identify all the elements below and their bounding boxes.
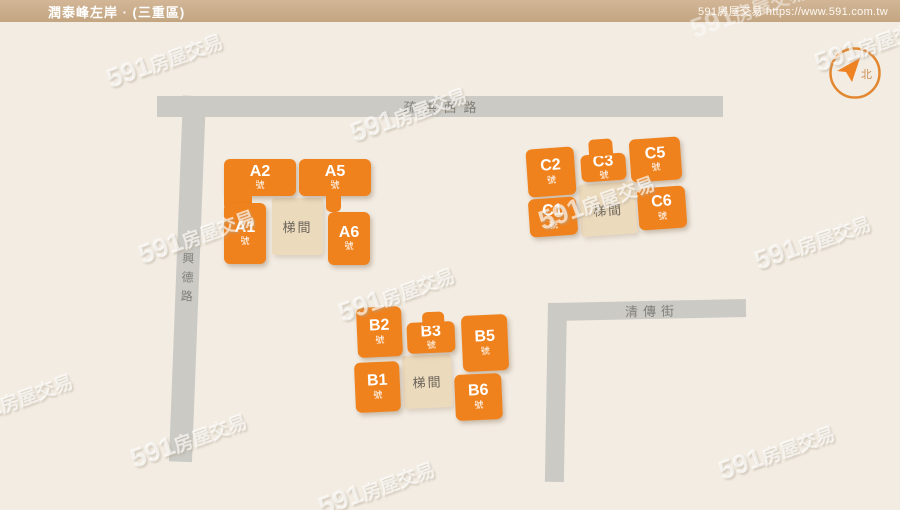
building-unit-label: 號 (549, 221, 559, 231)
building-label: A5 (325, 164, 345, 181)
building-unit-label: 號 (474, 401, 483, 411)
building-unit-label: 號 (427, 341, 436, 351)
building-c3[interactable]: C3 號 (580, 152, 627, 182)
building-label: A6 (339, 225, 359, 242)
road-label: 疏洪西路 (403, 97, 483, 116)
building-b2[interactable]: B2 號 (356, 306, 403, 358)
watermark: 591房屋交易 (714, 416, 838, 487)
stairwell-a: 梯間 (272, 198, 323, 255)
north-label: 北 (861, 68, 872, 81)
road-qingchuan: 清傳街 (553, 299, 746, 321)
building-a5[interactable]: A5 號 (299, 159, 371, 196)
stairwell-c: 梯間 (578, 181, 637, 237)
building-unit-label: 號 (255, 181, 264, 191)
building-b5[interactable]: B5 號 (461, 314, 509, 372)
building-unit-label: 號 (373, 391, 382, 401)
watermark: 591房屋交易 (314, 452, 438, 510)
road-qingchuan-branch (545, 303, 567, 482)
building-label: B6 (468, 383, 489, 401)
building-unit-label: 號 (547, 176, 557, 186)
building-label: C5 (644, 145, 666, 163)
building-unit-label: 號 (375, 336, 384, 346)
building-b3[interactable]: B3 號 (406, 321, 455, 354)
building-unit-label: 號 (651, 163, 661, 173)
building-c1[interactable]: C1 號 (528, 196, 579, 237)
road-label: 清傳街 (625, 300, 679, 320)
building-label: A1 (235, 220, 255, 237)
building-c2[interactable]: C2 號 (525, 146, 576, 197)
page-title: 潤泰峰左岸 · (三重區) (48, 2, 185, 21)
stairwell-b: 梯間 (402, 354, 453, 409)
building-unit-label: 號 (658, 212, 668, 222)
building-label: A2 (250, 164, 270, 181)
header-bar: 潤泰峰左岸 · (三重區) 591房屋交易 https://www.591.co… (0, 0, 900, 22)
site-plan-page: 潤泰峰左岸 · (三重區) 591房屋交易 https://www.591.co… (0, 0, 900, 510)
stairwell-label: 梯間 (412, 371, 443, 391)
building-b6[interactable]: B6 號 (454, 373, 503, 421)
building-label: B5 (474, 329, 495, 347)
building-b3-wing (422, 311, 445, 326)
building-unit-label: 號 (481, 347, 490, 357)
building-unit-label: 號 (240, 237, 249, 247)
building-a1[interactable]: A1 號 (224, 203, 266, 264)
building-c3-wing (588, 138, 613, 157)
building-unit-label: 號 (344, 242, 353, 252)
building-b1[interactable]: B1 號 (354, 361, 401, 413)
building-a2[interactable]: A2 號 (224, 159, 296, 196)
brand-link: 591房屋交易 https://www.591.com.tw (698, 3, 888, 19)
building-label: B1 (367, 373, 388, 391)
building-label: C1 (542, 202, 564, 220)
stairwell-label: 梯間 (592, 198, 623, 219)
building-label: C2 (540, 157, 562, 175)
building-label: C6 (651, 193, 673, 211)
building-c5[interactable]: C5 號 (629, 136, 683, 182)
building-a5-wing (326, 189, 341, 212)
stairwell-label: 梯間 (282, 217, 312, 236)
building-label: B2 (369, 318, 390, 336)
watermark: 591房屋交易 (750, 206, 874, 277)
road-xingde: 興德路 (169, 96, 206, 463)
building-a6[interactable]: A6 號 (328, 212, 370, 265)
north-arrow-icon (837, 58, 860, 82)
watermark: 591房屋交易 (0, 364, 77, 435)
road-label: 興德路 (178, 252, 197, 310)
compass: 北 (827, 46, 883, 102)
building-c6[interactable]: C6 號 (637, 185, 688, 230)
road-shuhong-west: 疏洪西路 (157, 96, 723, 117)
watermark: 591房屋交易 (102, 24, 226, 95)
building-unit-label: 號 (599, 171, 609, 181)
